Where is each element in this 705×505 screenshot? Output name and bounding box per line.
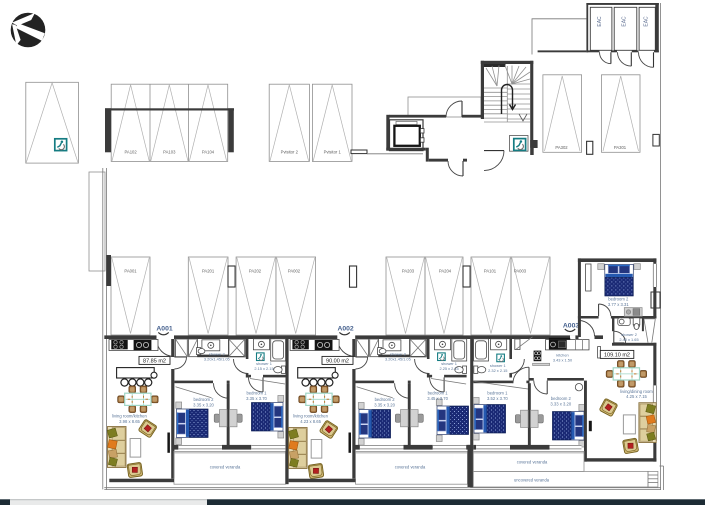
svg-text:A002: A002 xyxy=(337,326,353,333)
svg-text:covered veranda: covered veranda xyxy=(395,464,426,469)
svg-text:2.15 x 2.15: 2.15 x 2.15 xyxy=(254,366,273,371)
svg-text:PA202: PA202 xyxy=(249,269,262,274)
svg-text:bedroom 1: bedroom 1 xyxy=(487,390,508,395)
svg-text:bedroom 1: bedroom 1 xyxy=(246,390,267,395)
svg-text:3.98 x 8.65: 3.98 x 8.65 xyxy=(119,419,140,424)
svg-text:4.23 x 8.65: 4.23 x 8.65 xyxy=(300,419,321,424)
svg-text:bedroom 2: bedroom 2 xyxy=(375,397,396,402)
svg-text:4.25 x 7.15: 4.25 x 7.15 xyxy=(626,394,647,399)
svg-text:PA002: PA002 xyxy=(288,269,301,274)
svg-text:3.35 x 3.70: 3.35 x 3.70 xyxy=(246,396,267,401)
svg-text:3.20x1.45/1.05: 3.20x1.45/1.05 xyxy=(385,356,411,361)
svg-text:2.25 x 2.15: 2.25 x 2.15 xyxy=(439,366,458,371)
svg-text:3.35 x 3.20: 3.35 x 3.20 xyxy=(193,403,214,408)
svg-text:PA003: PA003 xyxy=(514,269,527,274)
svg-text:bedroom 2: bedroom 2 xyxy=(608,297,629,302)
svg-text:uncovered veranda: uncovered veranda xyxy=(514,478,550,483)
svg-text:living/dining room: living/dining room xyxy=(620,389,653,394)
svg-text:EAC: EAC xyxy=(644,16,650,27)
svg-text:3.33 x 3.20: 3.33 x 3.20 xyxy=(550,401,571,406)
svg-text:covered veranda: covered veranda xyxy=(517,460,548,465)
svg-text:2.40 x 1.65: 2.40 x 1.65 xyxy=(619,337,638,342)
svg-text:Pvisitor 2: Pvisitor 2 xyxy=(281,150,299,155)
svg-text:bedroom 2: bedroom 2 xyxy=(193,397,214,402)
svg-text:PA201: PA201 xyxy=(202,269,215,274)
svg-text:PA302: PA302 xyxy=(555,145,568,150)
svg-text:PA103: PA103 xyxy=(163,150,176,155)
svg-text:EAC: EAC xyxy=(622,16,628,27)
svg-text:PA101: PA101 xyxy=(484,269,497,274)
svg-text:3.45 x 3.70: 3.45 x 3.70 xyxy=(427,396,448,401)
svg-text:EAC: EAC xyxy=(597,16,603,27)
svg-text:bedroom 2: bedroom 2 xyxy=(551,396,572,401)
svg-text:A003: A003 xyxy=(563,322,579,329)
svg-text:PA104: PA104 xyxy=(202,150,215,155)
svg-text:2.32 x 2.15: 2.32 x 2.15 xyxy=(488,368,507,373)
svg-text:87.85 m2: 87.85 m2 xyxy=(143,359,166,365)
svg-text:PA204: PA204 xyxy=(439,269,452,274)
svg-text:3.35 x 3.20: 3.35 x 3.20 xyxy=(374,403,395,408)
svg-text:PA203: PA203 xyxy=(402,269,415,274)
svg-text:3.43 x 1.50: 3.43 x 1.50 xyxy=(553,358,573,363)
svg-text:3.77 x 3.31: 3.77 x 3.31 xyxy=(608,302,629,307)
svg-text:Pvisitor 1: Pvisitor 1 xyxy=(324,150,342,155)
svg-text:covered veranda: covered veranda xyxy=(210,464,241,469)
svg-text:90.00 m2: 90.00 m2 xyxy=(326,359,349,365)
svg-text:PA301: PA301 xyxy=(614,145,627,150)
svg-text:PA001: PA001 xyxy=(124,269,137,274)
svg-text:A001: A001 xyxy=(156,326,172,333)
svg-text:3.20x1.45/1.05: 3.20x1.45/1.05 xyxy=(204,356,230,361)
svg-text:PA102: PA102 xyxy=(124,150,137,155)
svg-text:bedroom 1: bedroom 1 xyxy=(428,390,449,395)
svg-text:3.52 x 3.70: 3.52 x 3.70 xyxy=(487,396,508,401)
svg-text:109.10 m2: 109.10 m2 xyxy=(604,353,630,359)
